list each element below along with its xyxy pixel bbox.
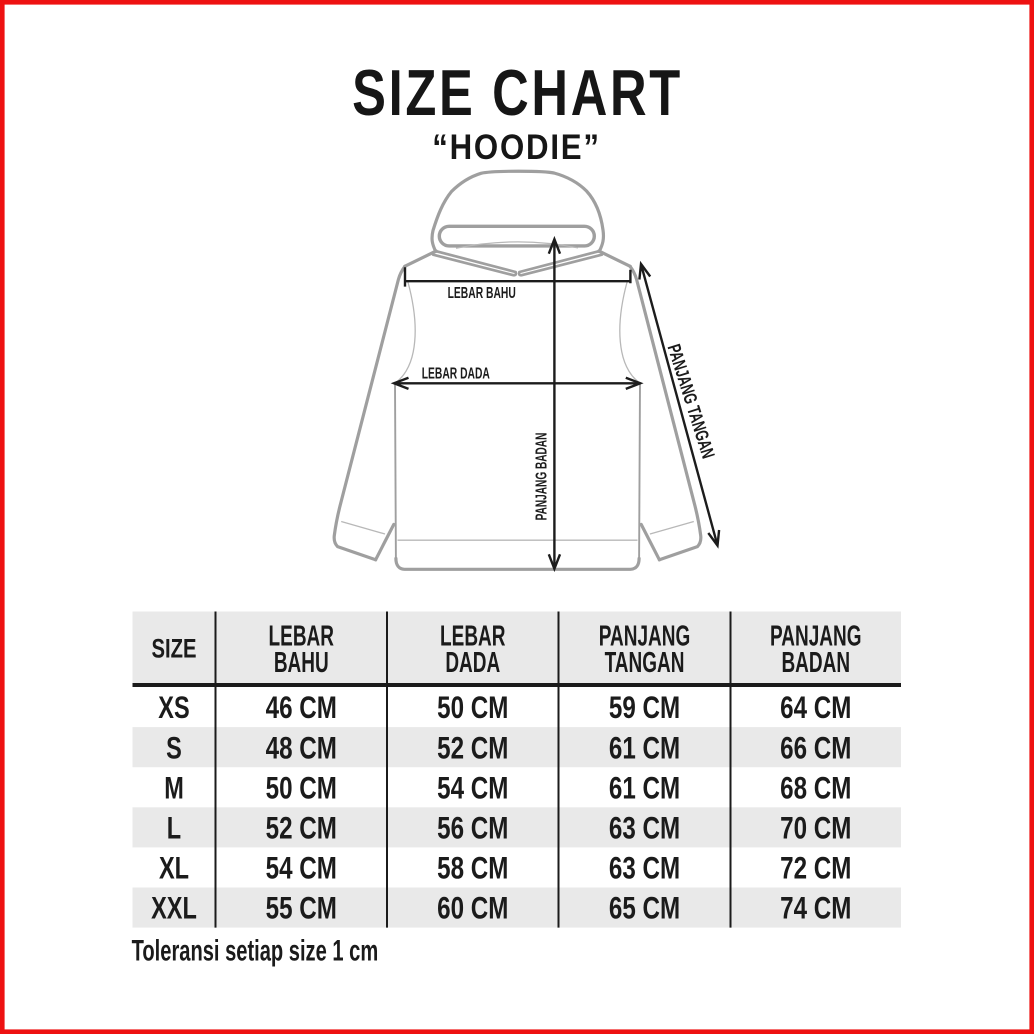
svg-text:BADAN: BADAN (781, 647, 850, 679)
svg-text:54 CM: 54 CM (437, 769, 508, 805)
svg-text:L: L (167, 810, 181, 845)
svg-text:52 CM: 52 CM (437, 729, 508, 765)
svg-text:Toleransi setiap size 1 cm: Toleransi setiap size 1 cm (132, 935, 379, 968)
svg-text:70 CM: 70 CM (780, 809, 851, 845)
svg-text:S: S (166, 730, 182, 765)
svg-text:XXL: XXL (151, 890, 197, 925)
svg-text:64 CM: 64 CM (780, 689, 851, 725)
svg-text:55 CM: 55 CM (266, 889, 337, 925)
svg-text:TANGAN: TANGAN (605, 647, 685, 679)
svg-text:XS: XS (158, 690, 189, 725)
svg-text:66 CM: 66 CM (780, 729, 851, 765)
svg-text:XL: XL (159, 850, 189, 885)
svg-text:63 CM: 63 CM (609, 849, 680, 885)
svg-text:60 CM: 60 CM (437, 889, 508, 925)
svg-text:59 CM: 59 CM (609, 689, 680, 725)
svg-text:63 CM: 63 CM (609, 809, 680, 845)
svg-text:68 CM: 68 CM (780, 769, 851, 805)
svg-text:M: M (164, 770, 184, 805)
svg-text:LEBAR DADA: LEBAR DADA (422, 365, 491, 383)
svg-text:61 CM: 61 CM (609, 769, 680, 805)
svg-text:PANJANG BADAN: PANJANG BADAN (532, 433, 550, 521)
svg-text:SIZE CHART: SIZE CHART (352, 57, 683, 129)
svg-text:48 CM: 48 CM (266, 729, 337, 765)
svg-text:50 CM: 50 CM (266, 769, 337, 805)
svg-text:74 CM: 74 CM (780, 889, 851, 925)
svg-text:DADA: DADA (445, 647, 500, 679)
svg-text:54 CM: 54 CM (266, 849, 337, 885)
svg-text:58 CM: 58 CM (437, 849, 508, 885)
svg-text:65 CM: 65 CM (609, 889, 680, 925)
svg-text:61 CM: 61 CM (609, 729, 680, 765)
svg-text:50 CM: 50 CM (437, 689, 508, 725)
svg-text:52 CM: 52 CM (266, 809, 337, 845)
svg-text:72 CM: 72 CM (780, 849, 851, 885)
svg-text:56 CM: 56 CM (437, 809, 508, 845)
svg-text:SIZE: SIZE (152, 634, 197, 665)
svg-text:46 CM: 46 CM (266, 689, 337, 725)
svg-text:“HOODIE”: “HOODIE” (432, 128, 600, 167)
svg-text:BAHU: BAHU (274, 647, 329, 679)
svg-text:LEBAR BAHU: LEBAR BAHU (448, 284, 516, 302)
